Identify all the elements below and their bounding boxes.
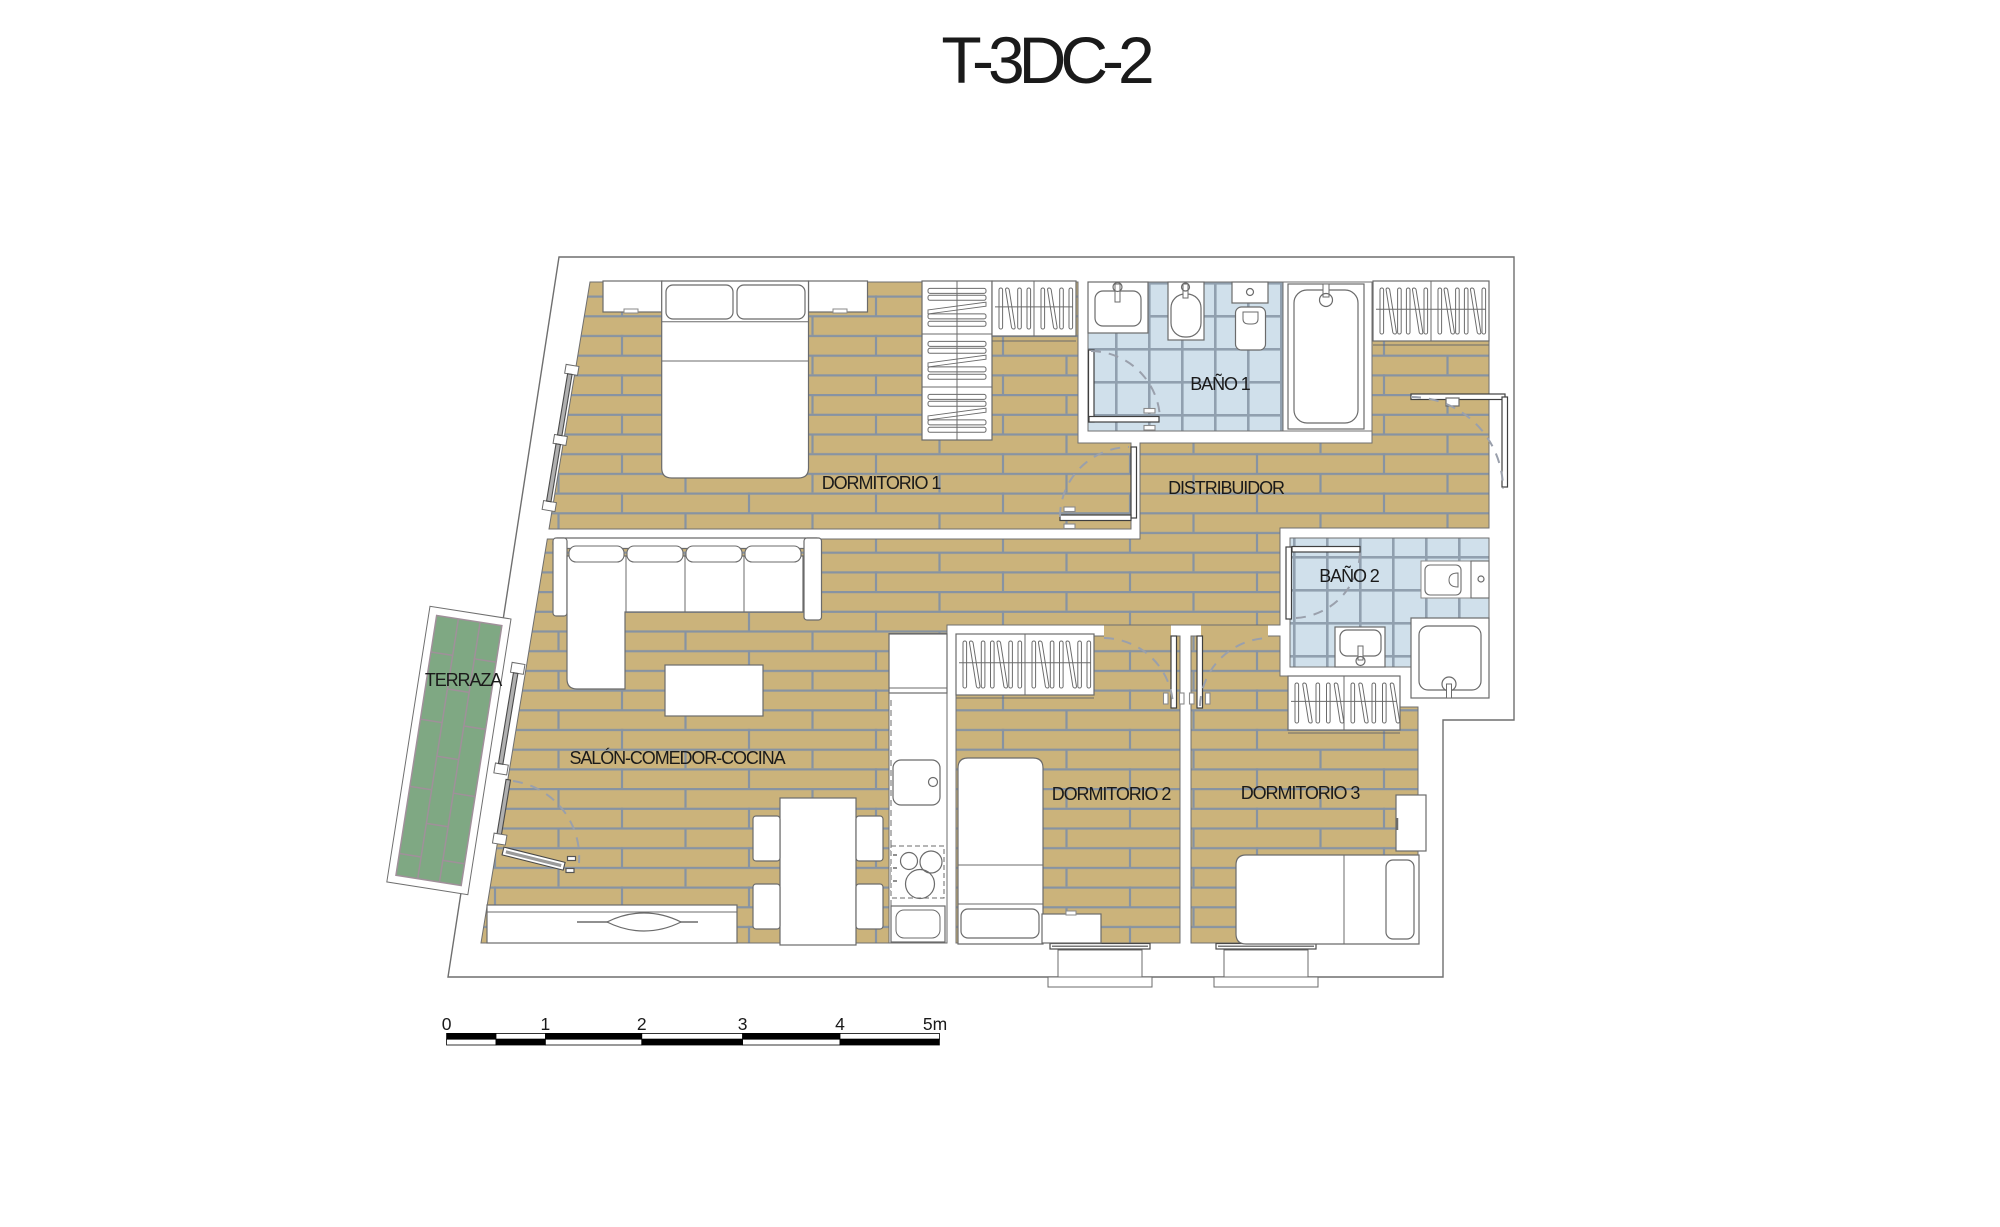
svg-text:3: 3 [738, 1014, 748, 1034]
svg-text:DORMITORIO 2: DORMITORIO 2 [1052, 784, 1172, 804]
svg-text:2: 2 [637, 1014, 647, 1034]
svg-text:5m: 5m [923, 1014, 947, 1034]
svg-text:SALÓN-COMEDOR-COCINA: SALÓN-COMEDOR-COCINA [569, 747, 785, 768]
svg-text:0: 0 [442, 1014, 452, 1034]
svg-text:BAÑO 2: BAÑO 2 [1319, 565, 1380, 586]
svg-text:T-3DC-2: T-3DC-2 [941, 23, 1152, 97]
svg-text:DORMITORIO 1: DORMITORIO 1 [822, 473, 942, 493]
svg-text:BAÑO 1: BAÑO 1 [1190, 373, 1251, 394]
svg-text:DISTRIBUIDOR: DISTRIBUIDOR [1168, 478, 1285, 498]
svg-text:DORMITORIO 3: DORMITORIO 3 [1241, 783, 1361, 803]
svg-text:1: 1 [541, 1014, 551, 1034]
svg-text:4: 4 [835, 1014, 845, 1034]
svg-text:TERRAZA: TERRAZA [425, 670, 502, 690]
